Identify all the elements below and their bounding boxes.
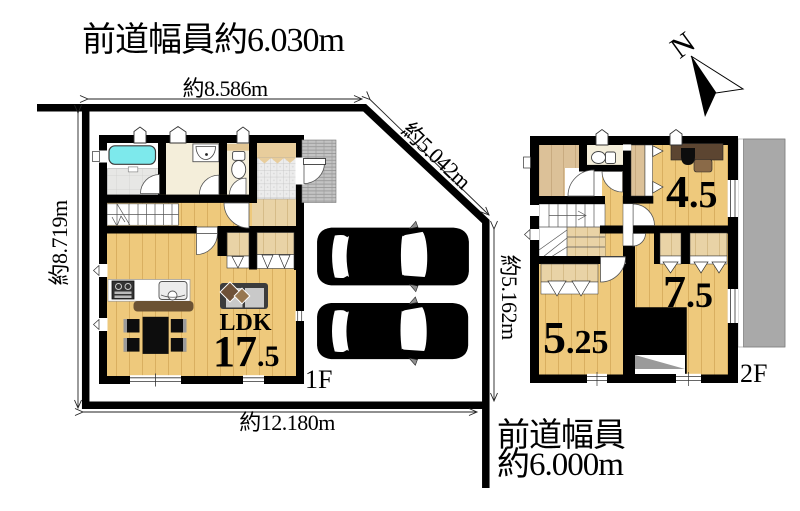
svg-text:約8.586m: 約8.586m	[182, 76, 268, 101]
svg-text:約12.180m: 約12.180m	[239, 410, 335, 435]
svg-text:約6.000m: 約6.000m	[497, 446, 624, 483]
svg-text:約5.162m: 約5.162m	[497, 254, 522, 340]
svg-text:1F: 1F	[305, 365, 332, 394]
svg-text:2F: 2F	[740, 359, 767, 388]
svg-text:4.5: 4.5	[666, 166, 718, 217]
svg-text:約8.719m: 約8.719m	[47, 200, 72, 286]
svg-text:前道幅員約6.030m: 前道幅員約6.030m	[82, 21, 344, 59]
